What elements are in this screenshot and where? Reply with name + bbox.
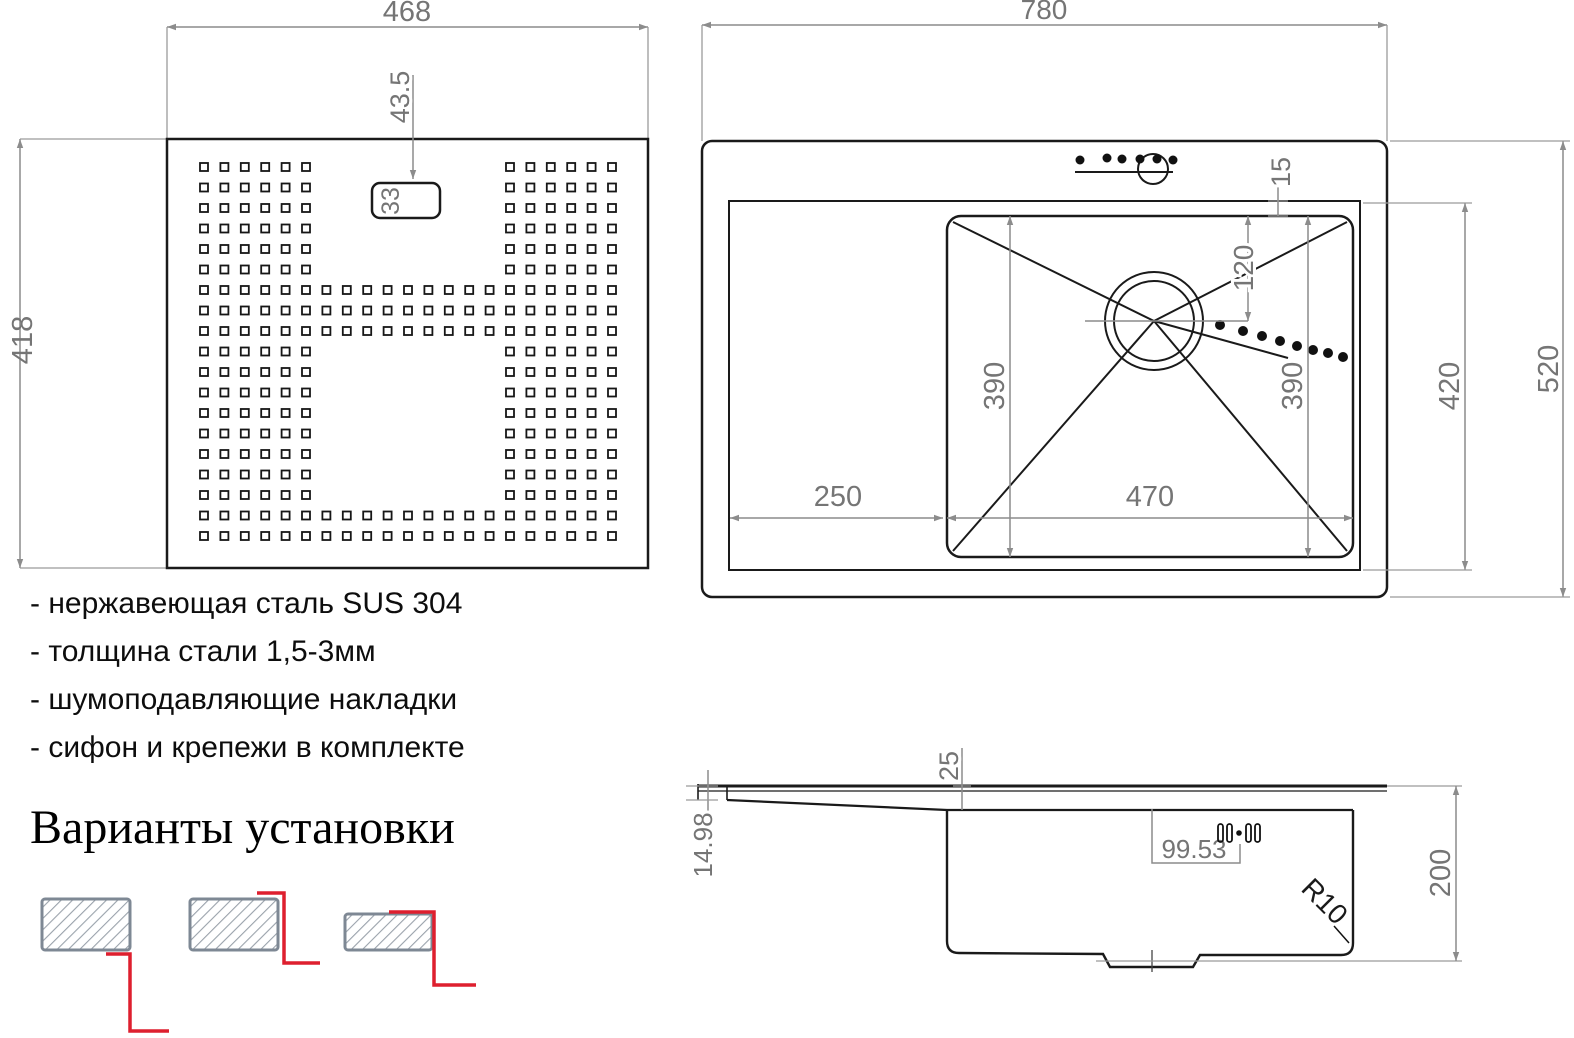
topview-width-dim-label: 780 [1021,0,1068,25]
drain-offset-dim-label: 120 [1228,245,1259,292]
topview-height-dim-label: 520 [1533,345,1565,393]
corner-radius-label: R10 [1296,872,1354,930]
rim-height-dim-label: 14.98 [688,812,718,877]
bowl-length-left-dim-label: 390 [979,362,1011,410]
countertop-profile-red [106,954,169,1031]
sink-inner-edge [729,201,1360,570]
spec-list: - нержавеющая сталь SUS 304 - толщина ст… [30,580,630,772]
corner-radius-leader [1334,926,1349,943]
inner-height-dim-label: 420 [1434,362,1466,410]
sink-rim-section [42,899,130,950]
sink-rim-section [190,899,278,950]
install-options-title: Варианты установки [30,800,650,855]
clip-offset-dim-label: 99.53 [1161,834,1226,864]
edge-drop-dim-label: 25 [934,751,964,781]
spec-item: - толщина стали 1,5-3мм [30,628,630,676]
depth-dim-label: 200 [1425,849,1457,897]
install-variant-overmount [42,899,169,1031]
bowl-profile [947,810,1353,967]
sink-rim-section [345,914,432,950]
faucet-dots [1076,154,1178,165]
rim-gap-dim-label: 15 [1266,157,1296,187]
plate-height-dim-label: 418 [7,316,39,364]
spec-item: - шумоподавляющие накладки [30,676,630,724]
drainboard-width-dim-label: 250 [814,481,862,513]
install-variant-flush [190,893,320,963]
hole-offset-dim-label: 43.5 [385,71,415,124]
spec-item: - нержавеющая сталь SUS 304 [30,580,630,628]
install-variants [0,870,600,1038]
hole-size-dim-label: 33 [377,187,405,215]
bowl-width-dim-label: 470 [1126,481,1174,513]
plate-drawing: 468 418 43.5 33 [0,0,660,578]
top-view-drawing: 780 520 420 390 390 [660,0,1574,660]
perforation-grid [200,163,616,540]
install-variant-integrated [345,912,476,985]
spec-item: - сифон и крепежи в комплекте [30,724,630,772]
side-view-drawing: 200 25 14.98 99.53 R10 [660,720,1574,1038]
plate-width-dim-label: 468 [383,0,431,28]
drainboard-slope [727,800,947,810]
bowl-length-right-dim-label: 390 [1277,362,1309,410]
